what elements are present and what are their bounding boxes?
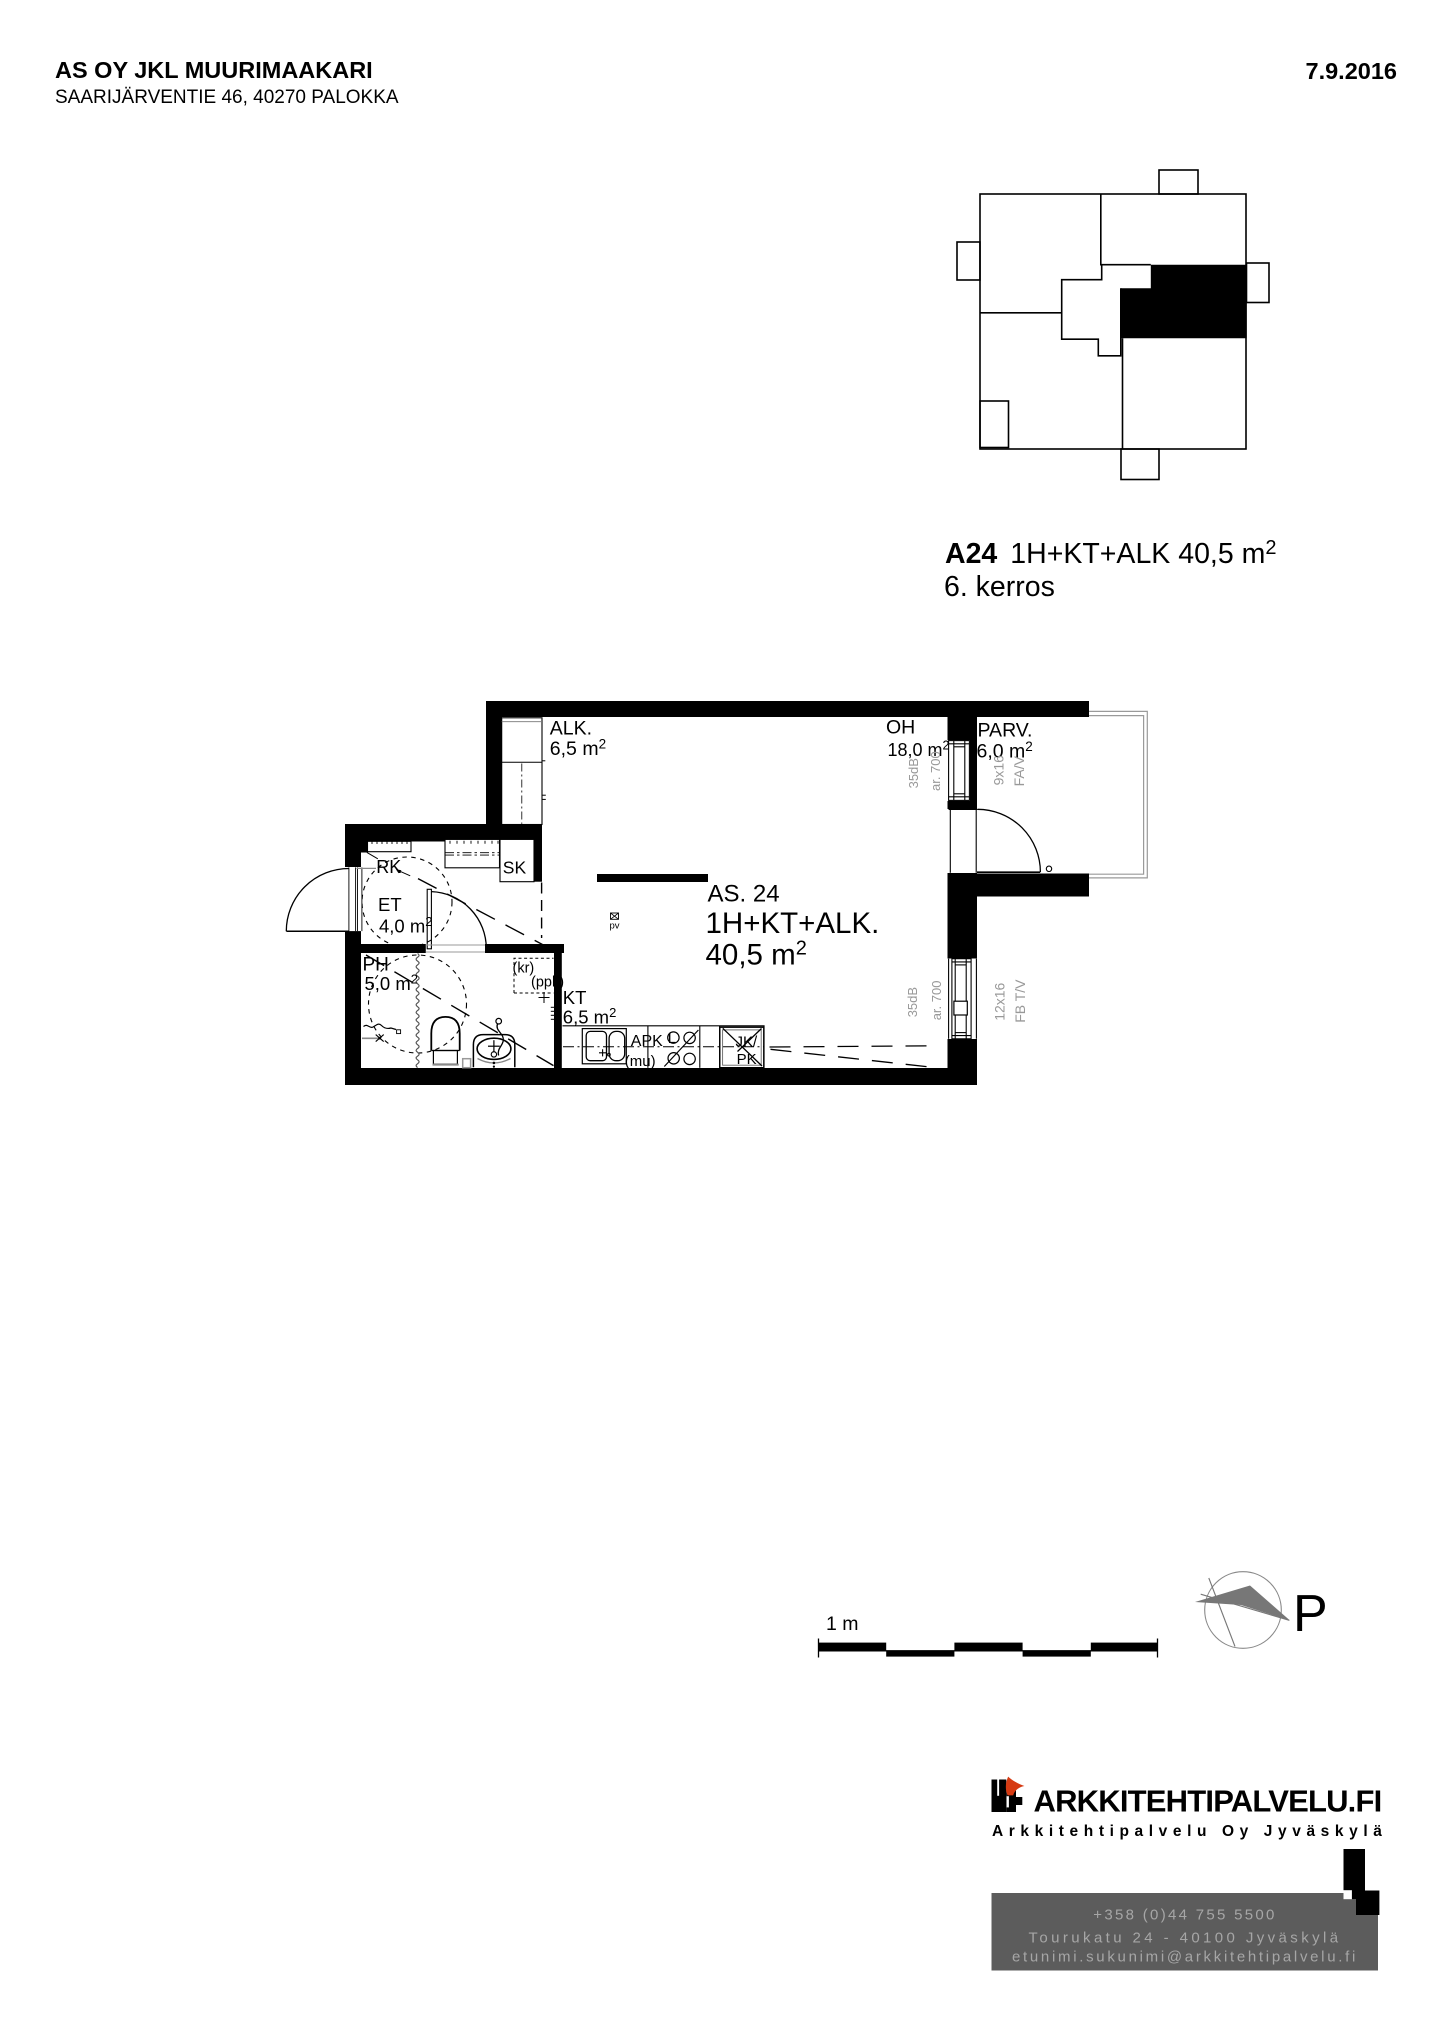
svg-text:JK/: JK/ — [736, 1034, 759, 1051]
svg-text:+358 (0)44 755 5500: +358 (0)44 755 5500 — [1093, 1907, 1276, 1924]
svg-text:PK: PK — [737, 1051, 757, 1068]
svg-text:APK: APK — [631, 1033, 663, 1050]
svg-text:FB T/V: FB T/V — [1012, 979, 1028, 1023]
svg-text:1 m: 1 m — [826, 1613, 859, 1635]
svg-text:1H+KT+ALK.: 1H+KT+ALK. — [706, 907, 880, 940]
svg-text:L: L — [668, 1030, 676, 1047]
svg-text:6,5 m2: 6,5 m2 — [550, 736, 606, 760]
svg-text:6,5 m2: 6,5 m2 — [563, 1005, 617, 1028]
svg-text:ET: ET — [378, 894, 402, 915]
svg-text:P: P — [1293, 1585, 1328, 1643]
svg-text:SAARIJÄRVENTIE 46, 40270 PALOK: SAARIJÄRVENTIE 46, 40270 PALOKKA — [55, 87, 399, 108]
svg-text:SK: SK — [503, 858, 527, 878]
svg-text:AS. 24: AS. 24 — [708, 881, 780, 908]
svg-text:pv: pv — [610, 921, 620, 932]
svg-text:KT: KT — [563, 987, 587, 1008]
svg-text:9x16: 9x16 — [990, 755, 1006, 786]
svg-text:40,5 m2: 40,5 m2 — [706, 938, 807, 972]
svg-text:7.9.2016: 7.9.2016 — [1306, 58, 1397, 84]
svg-text:etunimi.sukunimi@arkkitehtipal: etunimi.sukunimi@arkkitehtipalvelu.fi — [1012, 1948, 1358, 1965]
svg-text:RK: RK — [376, 857, 401, 877]
svg-text:6. kerros: 6. kerros — [944, 571, 1055, 603]
svg-text:PARV.: PARV. — [978, 720, 1033, 742]
svg-text:4,0 m2: 4,0 m2 — [379, 914, 433, 937]
svg-text:FA/V: FA/V — [1011, 755, 1027, 786]
svg-text:ar. 700: ar. 700 — [929, 981, 944, 1021]
svg-text:35dB: 35dB — [905, 987, 920, 1017]
svg-text:ALK.: ALK. — [550, 718, 592, 740]
svg-text:12x16: 12x16 — [992, 982, 1008, 1020]
svg-text:Arkkitehtipalvelu Oy Jyväskylä: Arkkitehtipalvelu Oy Jyväskylä — [992, 1823, 1387, 1840]
svg-text:Tourukatu 24 - 40100 Jyväskylä: Tourukatu 24 - 40100 Jyväskylä — [1029, 1929, 1342, 1946]
svg-text:5,0 m2: 5,0 m2 — [365, 971, 419, 994]
svg-text:35dB: 35dB — [906, 758, 921, 788]
svg-text:A241H+KT+ALK 40,5 m2: A241H+KT+ALK 40,5 m2 — [945, 537, 1276, 570]
svg-text:AS OY JKL MUURIMAAKARI: AS OY JKL MUURIMAAKARI — [55, 57, 373, 83]
svg-text:ar. 700: ar. 700 — [928, 751, 943, 791]
svg-text:OH: OH — [886, 717, 915, 739]
svg-text:ARKKITEHTIPALVELU.FI: ARKKITEHTIPALVELU.FI — [1034, 1784, 1382, 1819]
svg-text:(mu): (mu) — [625, 1053, 656, 1070]
svg-text:(ppk): (ppk) — [531, 975, 564, 991]
